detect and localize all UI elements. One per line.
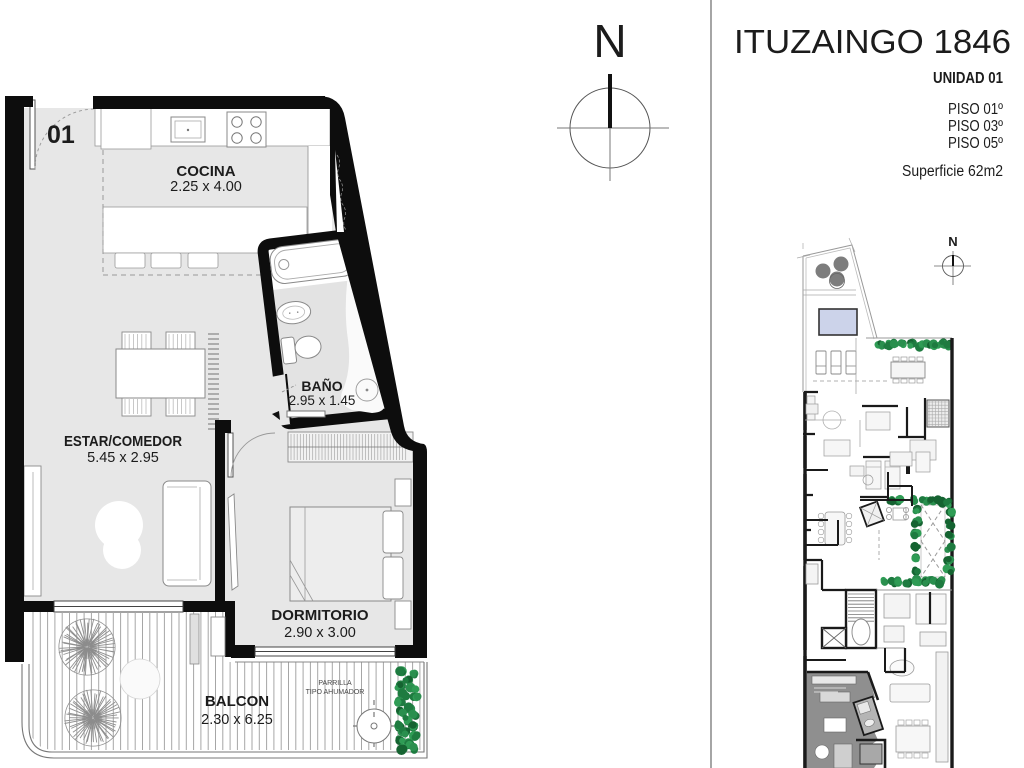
svg-text:COCINA: COCINA (176, 163, 235, 180)
svg-text:N: N (593, 15, 626, 67)
svg-text:2.25 x 4.00: 2.25 x 4.00 (170, 179, 242, 195)
svg-text:2.90 x 3.00: 2.90 x 3.00 (284, 625, 356, 641)
svg-text:BALCON: BALCON (205, 693, 269, 710)
svg-text:PARRILLA: PARRILLA (318, 680, 352, 687)
svg-text:PISO 05º: PISO 05º (948, 135, 1003, 152)
svg-text:N: N (948, 234, 957, 249)
svg-text:DORMITORIO: DORMITORIO (271, 607, 369, 624)
svg-text:ESTAR/COMEDOR: ESTAR/COMEDOR (64, 433, 182, 450)
svg-text:2.95 x 1.45: 2.95 x 1.45 (289, 393, 356, 408)
svg-text:UNIDAD 01: UNIDAD 01 (933, 70, 1003, 87)
svg-text:5.45 x 2.95: 5.45 x 2.95 (87, 450, 159, 466)
svg-text:TIPO AHUMADOR: TIPO AHUMADOR (306, 689, 365, 696)
svg-text:PISO 03º: PISO 03º (948, 118, 1003, 135)
svg-text:Superficie 62m2: Superficie 62m2 (902, 163, 1003, 180)
svg-text:2.30 x 6.25: 2.30 x 6.25 (201, 712, 273, 728)
svg-text:PISO 01º: PISO 01º (948, 101, 1003, 118)
svg-text:BAÑO: BAÑO (301, 377, 342, 394)
svg-text:ITUZAINGO 1846: ITUZAINGO 1846 (734, 23, 1011, 60)
svg-text:01: 01 (47, 121, 75, 149)
